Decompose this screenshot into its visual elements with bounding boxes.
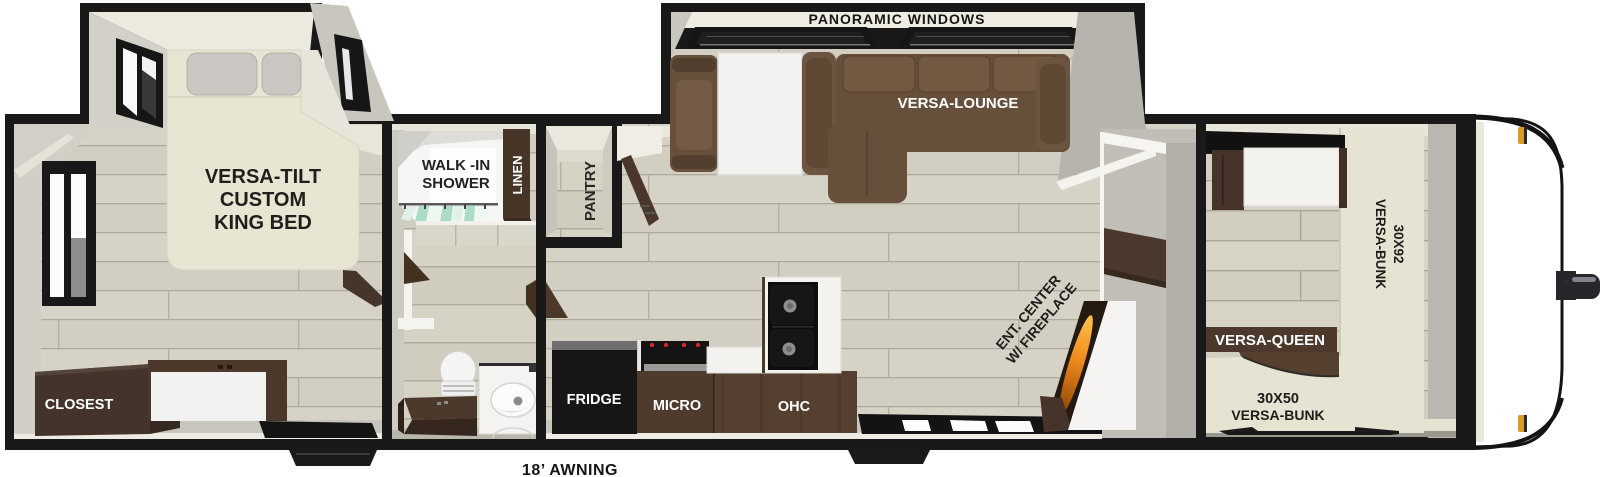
svg-text:PANORAMIC WINDOWS: PANORAMIC WINDOWS	[809, 11, 986, 27]
svg-text:18’ AWNING: 18’ AWNING	[522, 462, 618, 477]
svg-text:LINEN: LINEN	[510, 156, 525, 195]
svg-text:KING BED: KING BED	[214, 212, 312, 234]
svg-text:VERSA-LOUNGE: VERSA-LOUNGE	[898, 95, 1019, 112]
svg-text:CUSTOM: CUSTOM	[220, 189, 306, 211]
svg-text:FRIDGE: FRIDGE	[567, 392, 622, 408]
svg-text:VERSA-TILT: VERSA-TILT	[205, 166, 321, 188]
svg-text:VERSA-BUNK: VERSA-BUNK	[1231, 407, 1324, 423]
svg-text:30X50: 30X50	[1257, 391, 1299, 407]
svg-text:MICRO: MICRO	[653, 398, 701, 414]
svg-text:WALK -IN: WALK -IN	[422, 157, 490, 174]
svg-text:CLOSEST: CLOSEST	[45, 397, 114, 413]
svg-text:PANTRY: PANTRY	[582, 161, 599, 221]
svg-text:SHOWER: SHOWER	[422, 175, 490, 192]
svg-text:VERSA-BUNK: VERSA-BUNK	[1373, 199, 1388, 289]
svg-text:30X92: 30X92	[1391, 224, 1406, 263]
svg-text:VERSA-QUEEN: VERSA-QUEEN	[1215, 332, 1325, 349]
svg-text:OHC: OHC	[778, 399, 811, 415]
